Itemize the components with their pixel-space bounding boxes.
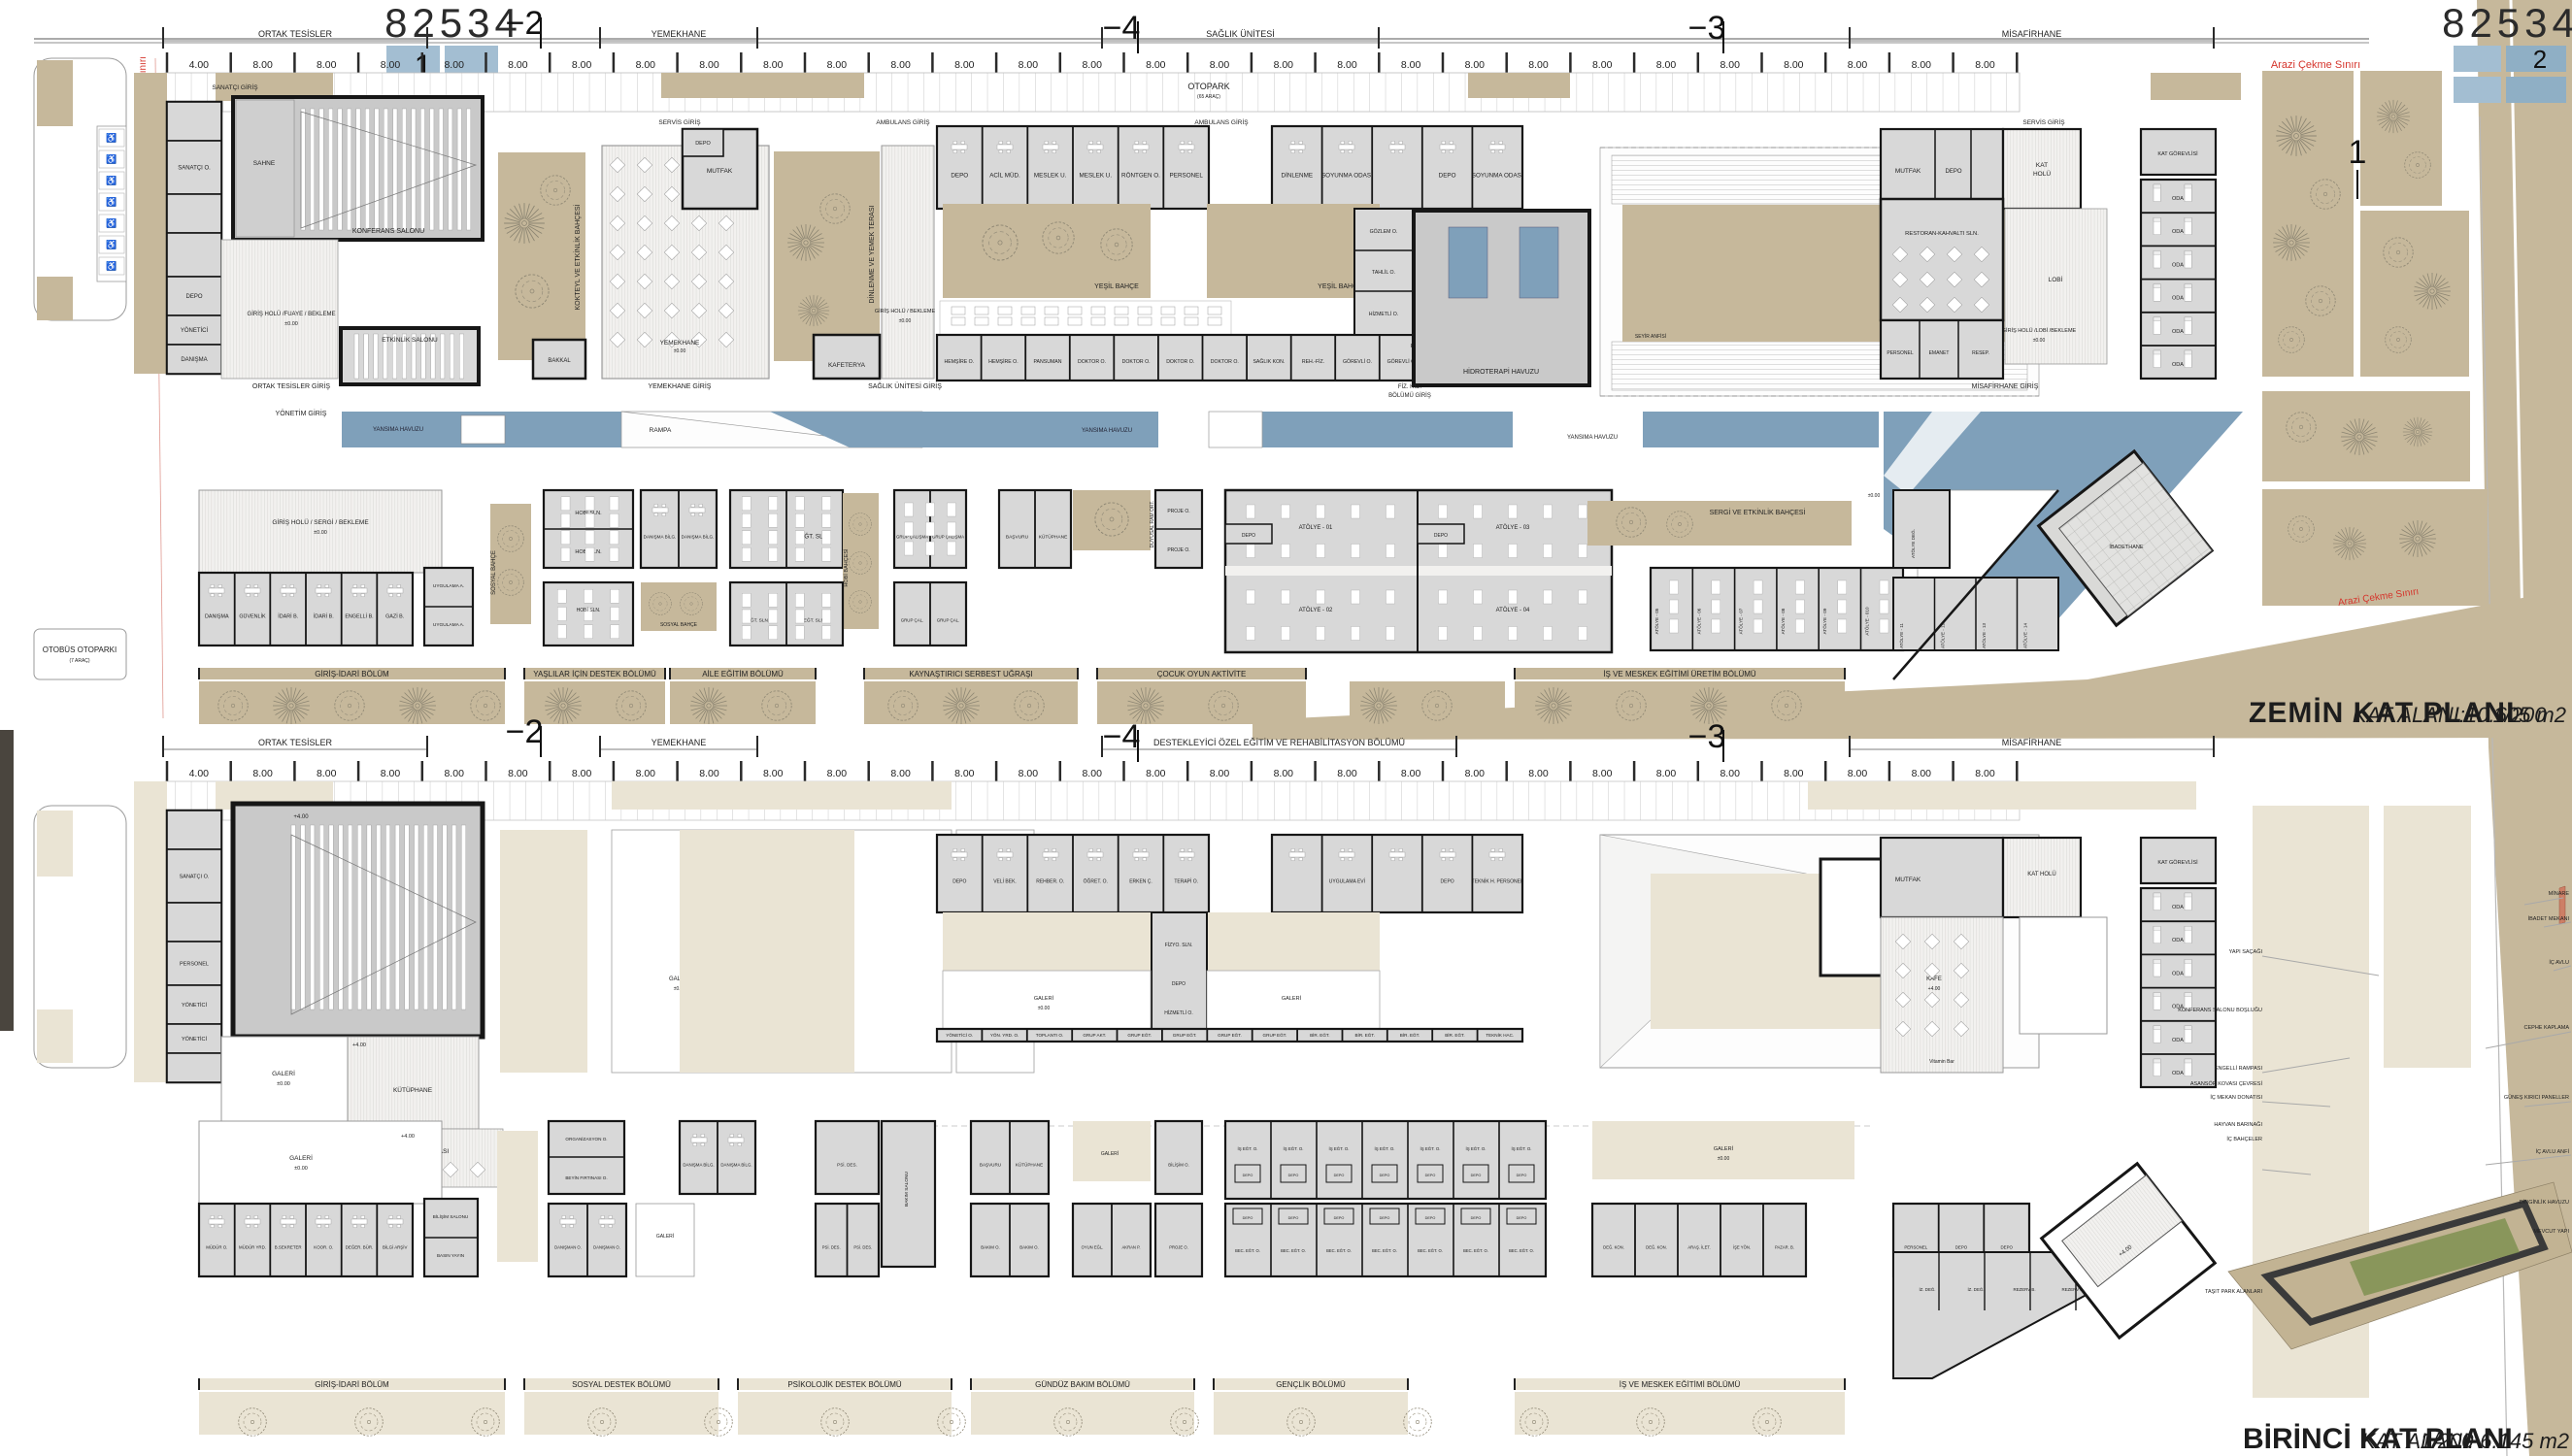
svg-text:4.00: 4.00 [189,59,210,71]
svg-text:8.00: 8.00 [1082,59,1102,71]
svg-text:8.00: 8.00 [1528,59,1549,71]
svg-text:TAŞIT PARK ALANLARI: TAŞIT PARK ALANLARI [2205,1289,2262,1295]
svg-text:ODA: ODA [2172,1071,2184,1076]
svg-text:♿: ♿ [106,260,117,271]
svg-text:DEPO: DEPO [1380,1216,1390,1220]
svg-text:İÇ AVLU ANFİ: İÇ AVLU ANFİ [2536,1148,2570,1155]
svg-text:±0.00: ±0.00 [899,318,912,324]
svg-text:SANATÇI GİRİŞ: SANATÇI GİRİŞ [212,83,258,91]
svg-text:İÇ BAHÇELER: İÇ BAHÇELER [2226,1136,2262,1142]
svg-text:YEMEKHANE: YEMEKHANE [651,29,707,39]
svg-text:♿: ♿ [106,153,117,164]
svg-text:DOKTOR O.: DOKTOR O. [1166,359,1194,365]
svg-text:±0.00: ±0.00 [284,321,298,327]
svg-text:DEPO: DEPO [1242,533,1255,539]
svg-text:DANIŞMA BİLG.: DANIŞMA BİLG. [644,534,677,540]
svg-text:8.00: 8.00 [317,59,337,71]
svg-text:8.00: 8.00 [1337,768,1357,779]
svg-text:MUTFAK: MUTFAK [1895,877,1921,883]
svg-text:YAŞLILAR İÇİN DESTEK BÖLÜMÜ: YAŞLILAR İÇİN DESTEK BÖLÜMÜ [533,670,656,678]
svg-text:KAFE: KAFE [1926,976,1942,982]
svg-text:BEC. EĞT. O.: BEC. EĞT. O. [1372,1248,1397,1253]
svg-text:MÜDÜR YRD.: MÜDÜR YRD. [239,1245,266,1250]
svg-text:LOBİ: LOBİ [2049,275,2063,283]
svg-text:DEPO: DEPO [185,294,202,300]
svg-text:8.00: 8.00 [1210,59,1230,71]
svg-text:SERGİ VE ETKİNLİK BAHÇESİ: SERGİ VE ETKİNLİK BAHÇESİ [1710,508,1806,516]
svg-text:8.00: 8.00 [1465,59,1486,71]
svg-text:MİSAFİRHANE: MİSAFİRHANE [2002,738,2062,747]
svg-text:İBADET MEKANI: İBADET MEKANI [2528,915,2570,922]
svg-text:VELİ BEK.: VELİ BEK. [993,878,1017,885]
svg-text:MİNARE: MİNARE [2549,890,2570,897]
svg-text:İŞ EĞT. O.: İŞ EĞT. O. [1420,1146,1441,1151]
svg-text:HİDROTERAPİ HAVUZU: HİDROTERAPİ HAVUZU [1463,367,1539,376]
svg-text:YÖNETİCİ: YÖNETİCİ [182,1036,207,1042]
svg-text:8.00: 8.00 [252,768,273,779]
svg-text:8.00: 8.00 [636,768,656,779]
svg-text:İŞ EĞT. O.: İŞ EĞT. O. [1329,1146,1350,1151]
svg-text:DİNGİNLİK HAVUZU: DİNGİNLİK HAVUZU [2520,1199,2569,1206]
svg-text:ATÖLYE - 010: ATÖLYE - 010 [1864,607,1870,636]
svg-text:İZ. DEĞ.: İZ. DEĞ. [1919,1287,1935,1292]
svg-text:ETKİNLİK SALONU: ETKİNLİK SALONU [382,335,438,344]
svg-text:GÜNEŞ KIRICI PANELLER: GÜNEŞ KIRICI PANELLER [2504,1094,2569,1101]
svg-text:REZERV B.: REZERV B. [2013,1287,2035,1292]
svg-text:TAHLİL O.: TAHLİL O. [1372,269,1395,276]
svg-text:8.00: 8.00 [1848,59,1868,71]
svg-text:ODA: ODA [2172,362,2184,368]
svg-text:DEPO: DEPO [1517,1216,1527,1220]
svg-text:8.00: 8.00 [252,59,273,71]
svg-text:BİR. EĞT.: BİR. EĞT. [1310,1032,1329,1038]
svg-text:8.00: 8.00 [636,59,656,71]
svg-text:KAT ALANI:10.605 m2: KAT ALANI:10.605 m2 [2353,703,2566,727]
svg-text:(7 ARAÇ): (7 ARAÇ) [69,658,89,664]
svg-text:BEYİN FIRTINASI O.: BEYİN FIRTINASI O. [565,1175,607,1180]
svg-text:KOOR. O.: KOOR. O. [314,1245,333,1250]
svg-text:DEPO: DEPO [1945,169,1961,175]
svg-text:ORGANİZASYON O.: ORGANİZASYON O. [565,1136,607,1142]
svg-text:YÖNETİCİ: YÖNETİCİ [182,1002,207,1009]
svg-text:8.00: 8.00 [1592,768,1613,779]
svg-text:DANIŞMA BİLG.: DANIŞMA BİLG. [682,534,715,540]
svg-text:±0.00: ±0.00 [277,1081,290,1087]
svg-text:KAT HOLÜ: KAT HOLÜ [2027,871,2055,877]
svg-text:8.00: 8.00 [1337,59,1357,71]
svg-text:DEPO: DEPO [1441,879,1454,885]
svg-text:DEPO: DEPO [1288,1174,1299,1177]
svg-text:SANATÇI O.: SANATÇI O. [180,875,210,880]
svg-text:İDARİ B.: İDARİ B. [278,613,298,620]
svg-text:82534: 82534 [2442,0,2572,46]
svg-text:TEKNİK H. PERSONEL: TEKNİK H. PERSONEL [1472,878,1523,885]
svg-text:8.00: 8.00 [1592,59,1613,71]
svg-text:ATÖLYE - 13: ATÖLYE - 13 [1981,622,1987,648]
svg-text:FİZ. HİD.: FİZ. HİD. [1398,383,1422,390]
svg-text:SEYİR ANFİSİ: SEYİR ANFİSİ [1635,333,1666,340]
svg-text:PERSONEL: PERSONEL [1904,1245,1927,1250]
svg-text:KAYNAŞTIRICI SERBEST UĞRAŞI: KAYNAŞTIRICI SERBEST UĞRAŞI [909,670,1032,678]
svg-text:+4.00: +4.00 [352,1042,366,1048]
svg-text:ORTAK TESİSLER: ORTAK TESİSLER [258,738,333,747]
svg-text:UYGULAMA A.: UYGULAMA A. [433,622,464,628]
svg-text:KÜTÜPHANE: KÜTÜPHANE [1039,534,1068,541]
svg-text:İŞ EĞT. O.: İŞ EĞT. O. [1466,1146,1486,1151]
svg-text:BEC. EĞT. O.: BEC. EĞT. O. [1418,1248,1443,1253]
svg-text:YANSIMA HAVUZU: YANSIMA HAVUZU [1082,428,1132,434]
svg-text:ODA: ODA [2172,329,2184,335]
svg-text:GRUP EĞT.: GRUP EĞT. [1218,1032,1242,1038]
svg-text:AKRAN P.: AKRAN P. [1121,1245,1140,1250]
svg-text:GENÇLİK BÖLÜMÜ: GENÇLİK BÖLÜMÜ [1276,1380,1346,1389]
svg-text:KONFERANS SALONU BOŞLUĞU: KONFERANS SALONU BOŞLUĞU [2178,1007,2262,1013]
svg-text:PERSONEL: PERSONEL [180,962,209,968]
svg-text:UYGULAMA EVİ: UYGULAMA EVİ [1329,878,1365,885]
svg-text:GİRİŞ-İDARİ BÖLÜM: GİRİŞ-İDARİ BÖLÜM [315,670,389,678]
svg-text:SAHNE: SAHNE [253,160,276,167]
svg-text:TEKNİK HAC.: TEKNİK HAC. [1486,1032,1514,1038]
svg-text:RESTORAN-KAHVALTI SLN.: RESTORAN-KAHVALTI SLN. [1905,231,1979,237]
svg-text:ODA: ODA [2172,938,2184,943]
svg-text:BEC. EĞT. O.: BEC. EĞT. O. [1235,1248,1260,1253]
svg-text:MÜDÜR O.: MÜDÜR O. [206,1245,227,1250]
svg-text:SOSYAL BAHÇE: SOSYAL BAHÇE [660,622,698,628]
svg-text:GAZİ B.: GAZİ B. [385,613,404,620]
svg-text:ATÖLYE DEĞ.: ATÖLYE DEĞ. [1910,529,1916,558]
svg-text:ATÖLYE - 02: ATÖLYE - 02 [1299,607,1333,613]
svg-text:ENGELLİ B.: ENGELLİ B. [345,613,373,620]
svg-text:DEPO: DEPO [1434,533,1448,539]
svg-text:DEPO: DEPO [2000,1245,2013,1250]
svg-text:8.00: 8.00 [1656,768,1677,779]
svg-text:−3: −3 [1688,718,1726,755]
svg-text:SOSYAL BAHÇE: SOSYAL BAHÇE [491,550,497,595]
svg-text:8.00: 8.00 [827,768,848,779]
svg-text:±0.00: ±0.00 [674,348,686,354]
svg-text:DANIŞMA BİLG.: DANIŞMA BİLG. [720,1163,752,1168]
svg-text:ATÖLYE - 04: ATÖLYE - 04 [1496,607,1530,613]
svg-text:TERAPİ O.: TERAPİ O. [1174,878,1198,885]
svg-text:İÇ MEKAN DONATISI: İÇ MEKAN DONATISI [2210,1094,2262,1101]
svg-text:SAĞLIK KON.: SAĞLIK KON. [1253,358,1285,365]
svg-text:CEPHE KAPLAMA: CEPHE KAPLAMA [2524,1025,2570,1031]
svg-text:İŞ VE MESKEK EĞİTİMİ ÜRETİM BÖ: İŞ VE MESKEK EĞİTİMİ ÜRETİM BÖLÜMÜ [1603,670,1756,678]
svg-text:8.00: 8.00 [508,768,528,779]
svg-text:8.00: 8.00 [572,768,592,779]
svg-text:MUTFAK: MUTFAK [707,168,733,175]
svg-text:GRUP ÇAL.: GRUP ÇAL. [901,617,924,622]
svg-text:BASIN YAYIN: BASIN YAYIN [437,1253,464,1258]
svg-text:ATÖLYE - 14: ATÖLYE - 14 [2022,622,2028,648]
svg-text:−2: −2 [506,5,544,42]
svg-text:GİRİŞ HOLÜ /FUAYE / BEKLEME: GİRİŞ HOLÜ /FUAYE / BEKLEME [248,311,336,317]
svg-text:PROJE O.: PROJE O. [1167,509,1189,514]
svg-text:DANIŞMA BİLG.: DANIŞMA BİLG. [683,1163,714,1168]
svg-text:ATÖLYE - 07: ATÖLYE - 07 [1738,608,1744,634]
svg-text:BAKIM O.: BAKIM O. [981,1245,1000,1250]
svg-text:DEPO: DEPO [695,141,711,147]
svg-text:DİNLENME: DİNLENME [1282,171,1314,180]
svg-text:YÖN. YRD. O.: YÖN. YRD. O. [990,1032,1019,1038]
svg-text:ODA: ODA [2172,905,2184,910]
svg-text:İŞ EĞT. O.: İŞ EĞT. O. [1512,1146,1532,1151]
svg-text:İBADETHANE: İBADETHANE [2109,544,2143,550]
svg-text:DEĞ. KON.: DEĞ. KON. [1646,1245,1667,1250]
svg-text:±0.00: ±0.00 [1718,1156,1730,1162]
svg-text:8.00: 8.00 [1274,768,1294,779]
svg-text:8.00: 8.00 [1975,768,1995,779]
svg-text:OTOBÜS OTOPARKI: OTOBÜS OTOPARKI [43,645,117,654]
svg-text:YEMEKHANE GİRİŞ: YEMEKHANE GİRİŞ [649,381,712,390]
svg-text:GİRİŞ HOLÜ / BEKLEME: GİRİŞ HOLÜ / BEKLEME [875,308,936,314]
svg-text:SERVİS GİRİŞ: SERVİS GİRİŞ [658,117,701,126]
svg-text:İZ. DEĞ.: İZ. DEĞ. [1967,1287,1984,1292]
svg-text:KÜTÜPHANE: KÜTÜPHANE [393,1086,433,1094]
svg-text:DİNLENME VE YEMEK TERASI: DİNLENME VE YEMEK TERASI [867,206,876,304]
svg-text:+4.00: +4.00 [1928,986,1941,992]
svg-text:BİLİŞİM O.: BİLİŞİM O. [1168,1163,1188,1168]
svg-text:DEPO: DEPO [1955,1245,1968,1250]
svg-text:Vitamin Bar: Vitamin Bar [1929,1059,1954,1065]
svg-text:BİLGİ ARŞİV: BİLGİ ARŞİV [383,1245,407,1250]
svg-text:HEMŞİRE O.: HEMŞİRE O. [945,358,975,365]
svg-text:8.00: 8.00 [1784,768,1804,779]
svg-text:8.00: 8.00 [699,59,719,71]
svg-text:BAKIM SALONU: BAKIM SALONU [904,1171,910,1207]
svg-text:GALERİ: GALERİ [1282,995,1302,1002]
svg-text:8.00: 8.00 [444,768,464,779]
svg-text:8.00: 8.00 [954,59,975,71]
svg-text:+4.00: +4.00 [401,1134,415,1140]
svg-text:ASANSÖR KOVASI ÇEVRESİ: ASANSÖR KOVASI ÇEVRESİ [2190,1080,2263,1087]
svg-text:DESTEKLEYİCİ ÖZEL EĞİTİM VE RE: DESTEKLEYİCİ ÖZEL EĞİTİM VE REHABİLİTASY… [1153,738,1405,747]
svg-text:KAFETERYA: KAFETERYA [828,362,866,369]
svg-text:BİR. EĞT.: BİR. EĞT. [1354,1032,1374,1038]
svg-text:MİSAFİRHANE: MİSAFİRHANE [2002,29,2062,39]
svg-text:YEMEKHANE: YEMEKHANE [651,738,707,747]
svg-text:BİR. EĞT.: BİR. EĞT. [1445,1032,1464,1038]
svg-text:ATÖLYE - 06: ATÖLYE - 06 [1695,608,1701,634]
svg-text:DEPO: DEPO [1425,1174,1436,1177]
svg-text:ORTAK TESİSLER: ORTAK TESİSLER [258,29,333,39]
svg-text:8.00: 8.00 [1274,59,1294,71]
svg-text:ODA: ODA [2172,262,2184,268]
svg-text:RÖNTGEN O.: RÖNTGEN O. [1121,172,1160,180]
svg-text:♿: ♿ [106,239,117,249]
svg-text:±0.00: ±0.00 [314,530,327,536]
svg-text:İŞ EĞT. O.: İŞ EĞT. O. [1238,1146,1258,1151]
svg-text:8.00: 8.00 [1912,768,1932,779]
svg-text:KÜTÜPHANE: KÜTÜPHANE [1016,1162,1043,1168]
svg-text:BAŞVURU: BAŞVURU [980,1163,1001,1168]
svg-text:DEPO: DEPO [1425,1216,1436,1220]
svg-text:DEPO: DEPO [1471,1216,1482,1220]
svg-text:ÇOCUK OYUN AKTİVİTE: ÇOCUK OYUN AKTİVİTE [1157,670,1247,678]
svg-text:HİZMETLİ O.: HİZMETLİ O. [1369,311,1399,317]
svg-text:UYGULAMA A.: UYGULAMA A. [433,583,464,589]
svg-text:8.00: 8.00 [381,59,401,71]
svg-text:YEMEKHANE: YEMEKHANE [660,340,700,347]
svg-text:8.00: 8.00 [954,768,975,779]
svg-text:ATÖLYE - 01: ATÖLYE - 01 [1299,524,1333,531]
svg-text:BAŞVURU: BAŞVURU [1006,535,1029,541]
svg-text:ACİL MÜD.: ACİL MÜD. [989,171,1020,180]
svg-text:İDARİ B.: İDARİ B. [314,613,334,620]
svg-text:8.00: 8.00 [1401,768,1421,779]
svg-text:ATÖLYE - 05: ATÖLYE - 05 [1653,608,1659,634]
svg-text:GALERİ: GALERİ [1101,1150,1119,1157]
svg-text:RESEP.: RESEP. [1972,350,1989,356]
svg-text:8.00: 8.00 [1401,59,1421,71]
svg-text:BAKKAL: BAKKAL [548,358,571,364]
svg-text:±0.00: ±0.00 [2033,338,2046,344]
svg-text:REH.-FİZ.: REH.-FİZ. [1302,358,1324,365]
svg-text:DEPO: DEPO [1439,173,1456,180]
svg-text:GİRİŞ-İDARİ BÖLÜM: GİRİŞ-İDARİ BÖLÜM [315,1380,389,1389]
svg-text:YANSIMA HAVUZU: YANSIMA HAVUZU [1567,435,1618,441]
svg-text:HOBİ BAHÇESİ: HOBİ BAHÇESİ [843,548,850,587]
svg-text:BİLİŞİM SALONU: BİLİŞİM SALONU [433,1213,469,1219]
svg-text:BEC. EĞT. O.: BEC. EĞT. O. [1326,1248,1352,1253]
svg-text:GALERİ: GALERİ [1714,1145,1734,1152]
svg-text:HOBİ SLN.: HOBİ SLN. [577,607,601,613]
svg-text:DANIŞMA: DANIŞMA [181,357,207,363]
svg-text:GALERİ: GALERİ [289,1153,313,1162]
svg-text:PANSUMAN: PANSUMAN [1033,359,1061,365]
svg-text:İŞ EĞT. O.: İŞ EĞT. O. [1375,1146,1395,1151]
svg-text:DEPO: DEPO [1288,1216,1299,1220]
svg-text:Arazi Çekme Sınırı: Arazi Çekme Sınırı [2271,59,2360,71]
svg-text:−4: −4 [1103,718,1141,755]
svg-text:PROJE O.: PROJE O. [1167,547,1189,553]
svg-text:♿: ♿ [106,132,117,143]
svg-text:±0.00: ±0.00 [1868,493,1881,499]
svg-text:TOPLANTI O.: TOPLANTI O. [1036,1033,1064,1038]
svg-text:1: 1 [2349,134,2367,171]
svg-text:8.00: 8.00 [1912,59,1932,71]
svg-text:GRUP EĞT.: GRUP EĞT. [1127,1032,1152,1038]
svg-text:GRUP EĞT.: GRUP EĞT. [1173,1032,1197,1038]
svg-text:MEVCUT YAPI: MEVCUT YAPI [2533,1229,2569,1235]
svg-text:ENGELLİ RAMPASI: ENGELLİ RAMPASI [2215,1065,2263,1072]
svg-text:GİRİŞ HOLÜ /LOBİ /BEKLEME: GİRİŞ HOLÜ /LOBİ /BEKLEME [2002,327,2077,334]
svg-text:YEŞİL BAHÇE: YEŞİL BAHÇE [1094,281,1139,290]
svg-text:GRUP ÇAL.: GRUP ÇAL. [937,617,960,622]
svg-text:DEĞ. KON.: DEĞ. KON. [1603,1245,1624,1250]
svg-text:İŞE YÖN.: İŞE YÖN. [1733,1245,1751,1250]
svg-text:8.00: 8.00 [1848,768,1868,779]
svg-text:8.00: 8.00 [699,768,719,779]
svg-text:GALERİ: GALERİ [1034,995,1054,1002]
svg-text:KAT: KAT [2036,162,2048,169]
svg-text:8.00: 8.00 [572,59,592,71]
svg-text:ATÖLYE - 11: ATÖLYE - 11 [1898,623,1904,648]
svg-text:ODA: ODA [2172,971,2184,976]
svg-text:DEPO: DEPO [1334,1216,1345,1220]
svg-text:DEPO: DEPO [1517,1174,1527,1177]
svg-text:İÇ AVLU: İÇ AVLU [2549,959,2569,966]
svg-text:MESLEK U.: MESLEK U. [1034,173,1067,180]
svg-text:8.00: 8.00 [317,768,337,779]
svg-text:DOKTOR O.: DOKTOR O. [1122,359,1151,365]
svg-text:8.00: 8.00 [1528,768,1549,779]
svg-text:MESLEK U.: MESLEK U. [1080,173,1113,180]
svg-text:EMANET: EMANET [1929,350,1950,356]
svg-text:PROJE O.: PROJE O. [1169,1245,1188,1250]
svg-text:DANIŞMAN O.: DANIŞMAN O. [554,1245,582,1250]
svg-text:DOKTOR O.: DOKTOR O. [1211,359,1239,365]
svg-text:8.00: 8.00 [1656,59,1677,71]
svg-text:ERKEN Ç.: ERKEN Ç. [1129,879,1152,885]
svg-text:ÖĞRET. O.: ÖĞRET. O. [1084,878,1108,885]
svg-text:ODA: ODA [2172,296,2184,302]
svg-text:KAT GÖREVLİSİ: KAT GÖREVLİSİ [2157,150,2198,157]
svg-text:HİZMETLİ O.: HİZMETLİ O. [1164,1009,1192,1016]
svg-text:DEPO: DEPO [1243,1174,1253,1177]
svg-text:ODA: ODA [2172,1038,2184,1043]
svg-text:GÜNDÜZ BAKIM BÖLÜMÜ: GÜNDÜZ BAKIM BÖLÜMÜ [1035,1380,1130,1389]
svg-text:B.SEKRETER: B.SEKRETER [275,1245,302,1250]
svg-text:♿: ♿ [106,217,117,228]
svg-text:−3: −3 [1688,10,1726,47]
svg-text:±0.00: ±0.00 [1038,1006,1051,1011]
svg-text:HOLÜ: HOLÜ [2033,170,2051,178]
svg-text:AMBULANS GİRİŞ: AMBULANS GİRİŞ [876,117,930,126]
svg-text:PSİKOLOJİK DESTEK BÖLÜMÜ: PSİKOLOJİK DESTEK BÖLÜMÜ [787,1380,902,1389]
svg-text:8.00: 8.00 [1210,768,1230,779]
svg-text:YÖNETİCİ O.: YÖNETİCİ O. [946,1032,973,1038]
svg-text:ATÖLYE - 08: ATÖLYE - 08 [1780,608,1786,634]
svg-text:8.00: 8.00 [827,59,848,71]
svg-text:SOYUNMA ODASI: SOYUNMA ODASI [1321,173,1373,180]
svg-text:8.00: 8.00 [1975,59,1995,71]
svg-text:SAĞLIK ÜNİTESİ: SAĞLIK ÜNİTESİ [1206,29,1275,39]
svg-text:♿: ♿ [106,196,117,207]
svg-text:DANIŞMA: DANIŞMA [205,614,229,620]
svg-text:8.00: 8.00 [381,768,401,779]
svg-text:BAKIM O.: BAKIM O. [1019,1245,1039,1250]
svg-text:OTOPARK: OTOPARK [1187,82,1229,91]
svg-text:DEĞER. BÜR.: DEĞER. BÜR. [346,1245,374,1250]
svg-text:SAĞLIK ÜNİTESİ GİRİŞ: SAĞLIK ÜNİTESİ GİRİŞ [868,381,942,390]
svg-text:DEPO: DEPO [1172,981,1186,987]
svg-text:İŞ VE MESKEK EĞİTİMİ BÖLÜMÜ: İŞ VE MESKEK EĞİTİMİ BÖLÜMÜ [1620,1380,1741,1389]
svg-text:SERVİS GİRİŞ: SERVİS GİRİŞ [2022,117,2065,126]
svg-text:8.00: 8.00 [890,768,911,779]
svg-text:MUTFAK: MUTFAK [1895,168,1921,175]
svg-text:HEMŞİRE O.: HEMŞİRE O. [988,358,1019,365]
svg-text:2: 2 [2533,45,2547,74]
svg-text:BEC. EĞT. O.: BEC. EĞT. O. [1463,1248,1488,1253]
svg-text:8.00: 8.00 [1019,768,1039,779]
svg-text:FİZYO. SLN.: FİZYO. SLN. [1165,942,1193,948]
svg-text:ATÖLYE - 03: ATÖLYE - 03 [1496,524,1530,531]
svg-text:GALERİ: GALERİ [272,1069,295,1077]
svg-text:ODA: ODA [2172,229,2184,235]
svg-text:DEPO: DEPO [1380,1174,1390,1177]
svg-text:(65 ARAÇ): (65 ARAÇ) [1197,94,1220,100]
svg-text:GÜVENLİK: GÜVENLİK [239,613,266,620]
svg-text:MİSAFİRHANE GİRİŞ: MİSAFİRHANE GİRİŞ [1972,381,2039,390]
svg-text:KAT ALANI: 6.145 m2: KAT ALANI: 6.145 m2 [2361,1429,2569,1453]
svg-text:BEC. EĞT. O.: BEC. EĞT. O. [1281,1248,1306,1253]
svg-text:−4: −4 [1103,10,1141,47]
svg-text:KONFERANS SALONU: KONFERANS SALONU [352,228,424,235]
svg-text:82534: 82534 [384,0,522,46]
svg-text:AİLE EĞİTİM BÖLÜMÜ: AİLE EĞİTİM BÖLÜMÜ [702,670,784,678]
svg-text:8.00: 8.00 [763,768,784,779]
